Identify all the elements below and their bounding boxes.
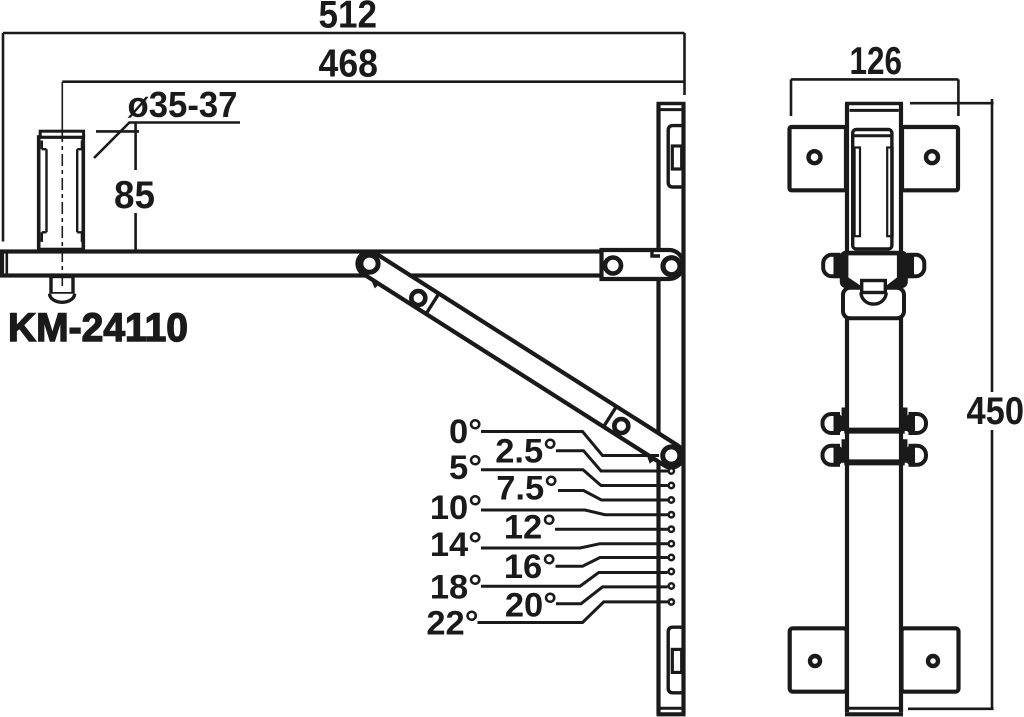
svg-text:20°: 20° — [505, 587, 557, 625]
svg-text:468: 468 — [319, 43, 379, 86]
svg-text:2.5°: 2.5° — [495, 433, 557, 471]
svg-text:18°: 18° — [430, 569, 482, 607]
svg-text:ø35-37: ø35-37 — [128, 84, 238, 125]
svg-text:7.5°: 7.5° — [496, 470, 558, 508]
svg-text:85: 85 — [114, 174, 155, 217]
svg-text:16°: 16° — [504, 548, 556, 586]
svg-text:450: 450 — [967, 390, 1024, 433]
svg-text:0°: 0° — [449, 413, 482, 451]
svg-text:14°: 14° — [430, 526, 482, 564]
svg-text:512: 512 — [319, 0, 378, 37]
svg-text:12°: 12° — [504, 509, 556, 547]
svg-text:10°: 10° — [430, 489, 482, 527]
svg-text:KM-24110: KM-24110 — [8, 306, 188, 350]
svg-text:22°: 22° — [426, 605, 478, 643]
svg-text:5°: 5° — [449, 449, 482, 487]
svg-text:126: 126 — [850, 40, 903, 83]
